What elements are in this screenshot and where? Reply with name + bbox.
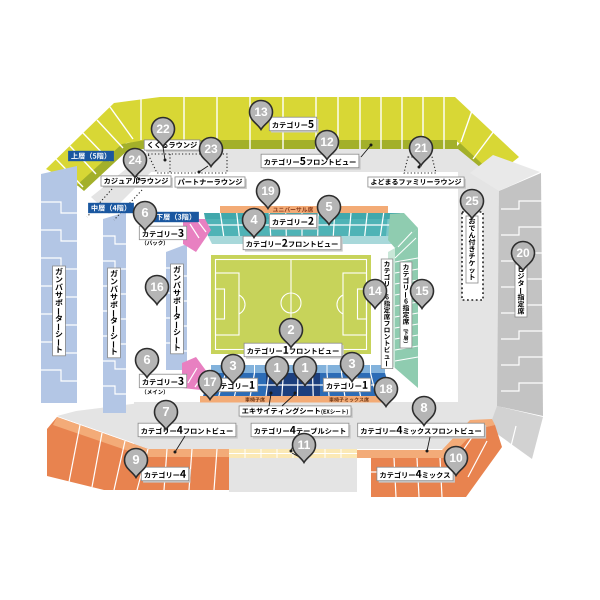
svg-text:24: 24: [128, 153, 142, 167]
svg-text:6: 6: [141, 205, 148, 220]
svg-text:15: 15: [415, 284, 429, 298]
svg-text:7: 7: [162, 404, 169, 419]
svg-text:21: 21: [414, 141, 428, 155]
svg-text:12: 12: [320, 135, 334, 149]
svg-text:16: 16: [150, 280, 164, 294]
svg-text:23: 23: [204, 142, 218, 156]
svg-text:10: 10: [449, 451, 463, 465]
svg-text:9: 9: [132, 452, 139, 467]
svg-text:20: 20: [516, 246, 530, 260]
svg-text:3: 3: [229, 358, 236, 373]
svg-text:25: 25: [465, 194, 479, 208]
svg-text:1: 1: [273, 360, 280, 375]
svg-text:13: 13: [254, 105, 268, 119]
svg-text:22: 22: [156, 122, 170, 136]
svg-text:5: 5: [325, 199, 332, 214]
svg-text:17: 17: [203, 375, 217, 389]
svg-text:2: 2: [287, 322, 294, 337]
svg-text:4: 4: [250, 212, 258, 227]
svg-text:3: 3: [348, 356, 355, 371]
svg-text:14: 14: [368, 284, 382, 298]
svg-text:11: 11: [298, 438, 311, 452]
svg-text:6: 6: [143, 352, 150, 367]
svg-text:18: 18: [379, 382, 393, 396]
svg-text:1: 1: [301, 360, 308, 375]
svg-text:8: 8: [420, 400, 427, 415]
svg-text:19: 19: [261, 184, 275, 198]
